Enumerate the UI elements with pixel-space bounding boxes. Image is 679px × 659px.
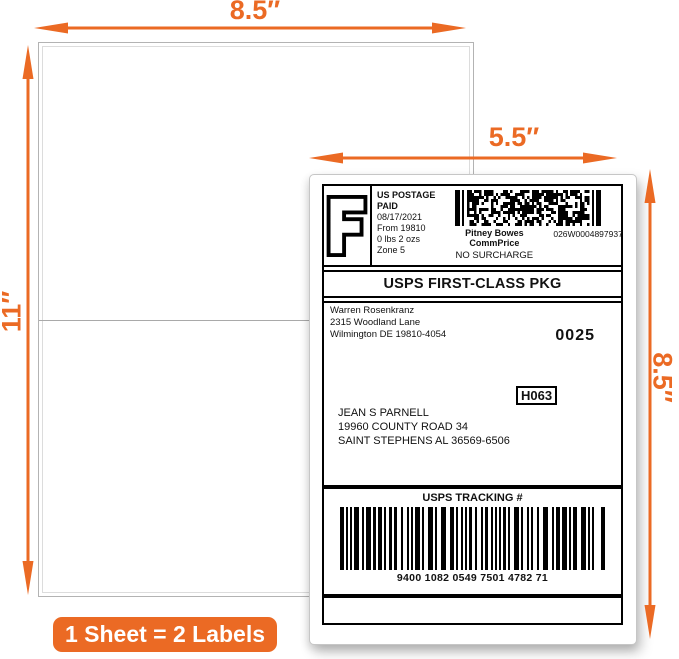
batch-number: 0025 — [555, 327, 595, 345]
product-diagram: US POSTAGE PAID 08/17/2021 From 19810 0 … — [0, 0, 679, 659]
routing-code: H063 — [516, 386, 557, 405]
postage-weight: 0 lbs 2 ozs — [377, 234, 435, 245]
sender-city: Wilmington DE 19810-4054 — [330, 329, 446, 341]
recipient-city: SAINT STEPHENS AL 36569-6506 — [338, 434, 510, 448]
empty-section — [324, 598, 621, 623]
postage-details: US POSTAGE PAID 08/17/2021 From 19810 0 … — [372, 186, 435, 265]
indicia-cell — [324, 186, 372, 265]
meter-number: 026W0004897937 — [553, 228, 622, 261]
recipient-name: JEAN S PARNELL — [338, 406, 510, 420]
meter-carrier-block: Pitney Bowes CommPrice NO SURCHARGE — [435, 228, 553, 261]
postage-section: US POSTAGE PAID 08/17/2021 From 19810 0 … — [324, 186, 621, 265]
sender-name: Warren Rosenkranz — [330, 305, 446, 317]
tracking-number: 9400 1082 0549 7501 4782 71 — [324, 572, 621, 584]
address-section: Warren Rosenkranz 2315 Woodland Lane Wil… — [324, 303, 621, 485]
sheet-width-label: 8.5″ — [195, 0, 315, 26]
meter-carrier: Pitney Bowes — [465, 228, 524, 238]
shipping-label-card: US POSTAGE PAID 08/17/2021 From 19810 0 … — [309, 174, 637, 645]
label-width-label: 5.5″ — [454, 122, 574, 153]
postage-origin: From 19810 — [377, 223, 435, 234]
service-banner: USPS FIRST-CLASS PKG — [324, 272, 621, 296]
sender-street: 2315 Woodland Lane — [330, 317, 446, 329]
indicia-f-icon — [324, 194, 370, 258]
sheet-equals-labels-badge: 1 Sheet = 2 Labels — [53, 617, 277, 652]
postage-line2: PAID — [377, 201, 435, 212]
meter-barcode — [455, 190, 603, 226]
meter-info-row: Pitney Bowes CommPrice NO SURCHARGE 026W… — [435, 228, 622, 261]
section-separator — [324, 265, 621, 272]
tracking-section: USPS TRACKING # 9400 1082 0549 7501 4782… — [324, 489, 621, 594]
meter-cell: Pitney Bowes CommPrice NO SURCHARGE 026W… — [435, 186, 622, 265]
label-height-label: 8.5″ — [647, 338, 678, 418]
shipping-label: US POSTAGE PAID 08/17/2021 From 19810 0 … — [322, 184, 623, 625]
recipient-street: 19960 COUNTY ROAD 34 — [338, 420, 510, 434]
meter-program: CommPrice — [469, 238, 519, 248]
tracking-title: USPS TRACKING # — [324, 492, 621, 504]
recipient-address: JEAN S PARNELL 19960 COUNTY ROAD 34 SAIN… — [338, 406, 510, 448]
sender-address: Warren Rosenkranz 2315 Woodland Lane Wil… — [330, 305, 446, 341]
postage-zone: Zone 5 — [377, 245, 435, 256]
sheet-height-label: 11″ — [0, 277, 28, 347]
postage-line1: US POSTAGE — [377, 190, 435, 201]
postage-date: 08/17/2021 — [377, 212, 435, 223]
tracking-barcode — [340, 507, 605, 570]
section-separator — [324, 296, 621, 303]
meter-surcharge: NO SURCHARGE — [456, 250, 534, 261]
